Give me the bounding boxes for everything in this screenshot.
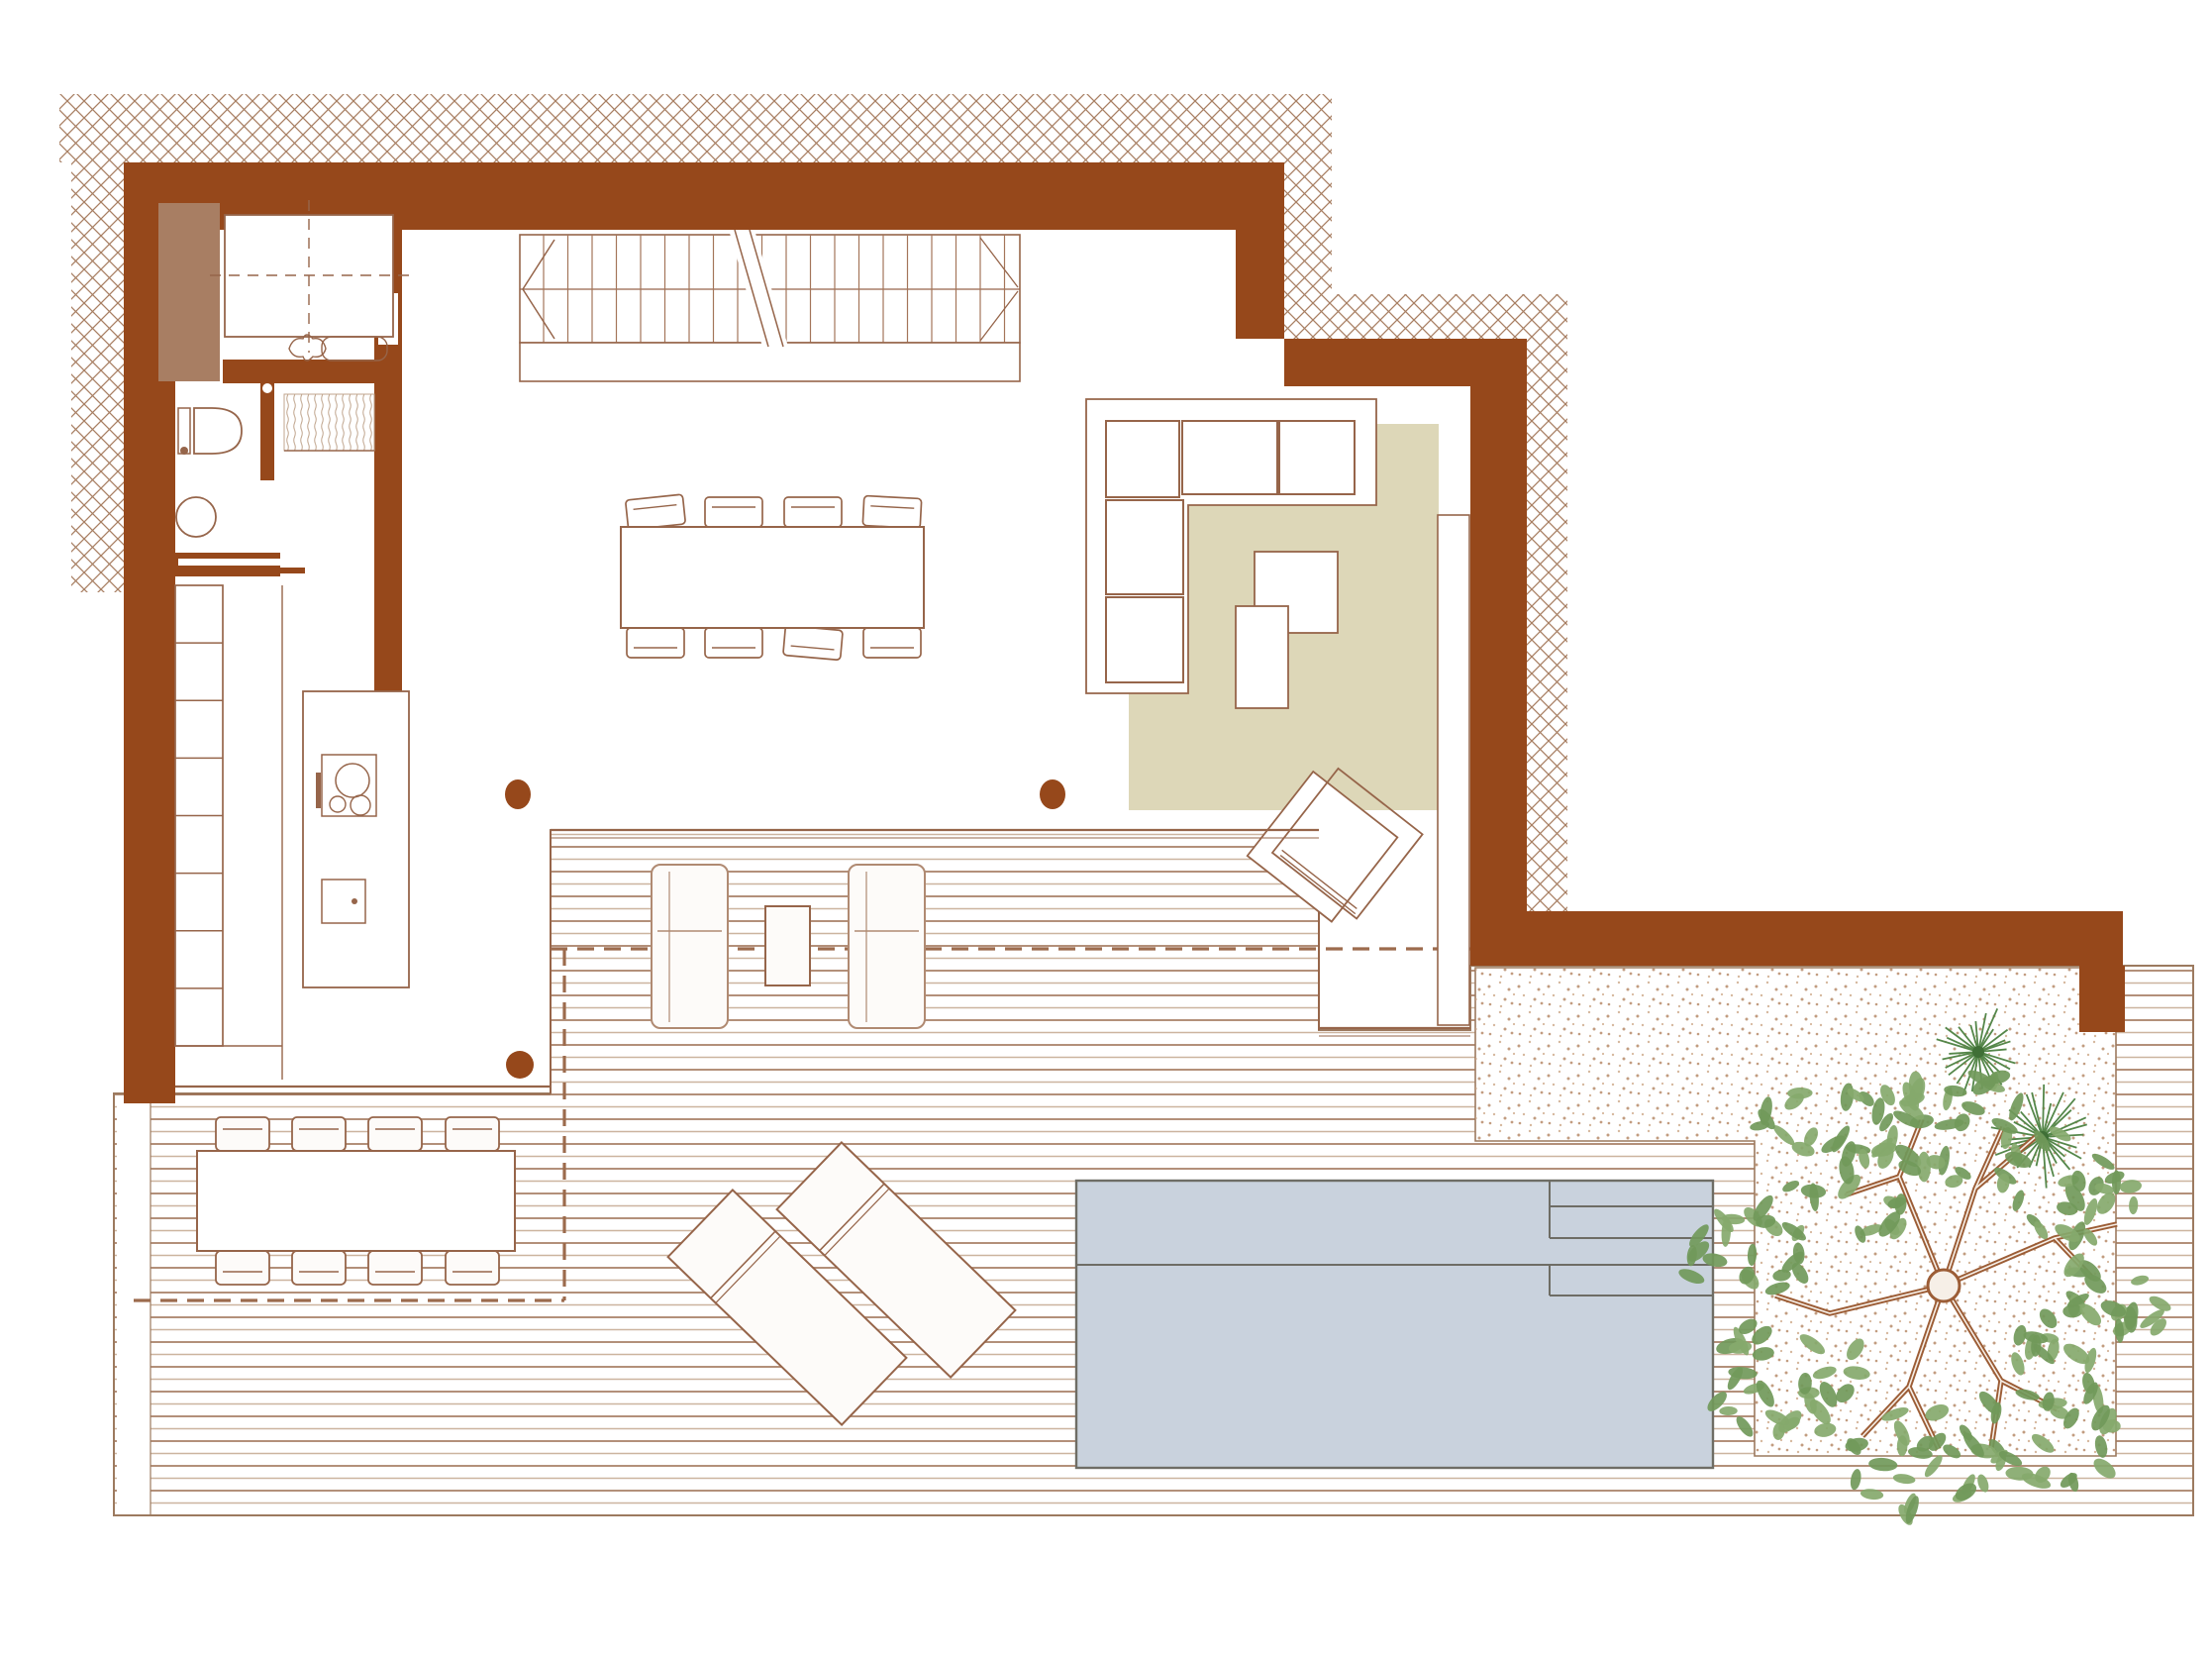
small-basin: [289, 335, 326, 361]
dining-chair: [862, 496, 921, 529]
floor-plan-canvas: [0, 0, 2212, 1659]
outdoor-dining-chair: [368, 1117, 422, 1151]
stair-landing: [520, 343, 1020, 381]
bath-partition: [260, 381, 274, 480]
dining-chair: [626, 494, 686, 530]
wall-step-vertical: [1236, 230, 1284, 339]
bathroom: [176, 381, 374, 537]
outdoor-dining-chair: [446, 1117, 499, 1151]
dining-table: [621, 527, 924, 628]
dining-chair: [705, 497, 762, 527]
wall-bottom-right: [1470, 911, 2123, 966]
wash-basin: [176, 497, 216, 537]
wall-elevator-bottom: [223, 360, 374, 383]
elevator-room: [158, 200, 410, 381]
pocket-door-leaf: [186, 568, 305, 573]
outdoor-dining-chair: [446, 1251, 499, 1285]
outdoor-dining-chair: [216, 1251, 269, 1285]
sideboard: [1438, 515, 1469, 1025]
side-table: [765, 906, 810, 985]
island-sink: [322, 880, 365, 923]
outdoor-dining-chair: [368, 1251, 422, 1285]
dining-chair: [863, 628, 921, 658]
staircase: [520, 230, 1020, 381]
dining-chair: [627, 628, 684, 658]
outdoor-dining-chair: [216, 1117, 269, 1151]
outdoor-dining-chair: [292, 1117, 346, 1151]
elevator-shaft: [158, 203, 220, 381]
kitchen-island: [303, 691, 409, 987]
dining-chair: [783, 626, 843, 661]
shower-closet: [284, 394, 374, 451]
outdoor-dining-chair: [292, 1251, 346, 1285]
coffee-table-small: [1236, 606, 1288, 708]
floor-plan-drawing: [0, 0, 2212, 1659]
wall-end-tab: [2079, 966, 2125, 1032]
dining-area: [621, 494, 924, 660]
sun-lounger: [849, 865, 925, 1028]
outdoor-dining-table: [197, 1151, 515, 1251]
kitchen-wall-cabinets: [175, 585, 223, 1046]
dining-chair: [784, 497, 842, 527]
sun-lounger: [652, 865, 728, 1028]
wall-step-horizontal: [1284, 339, 1527, 386]
swimming-pool: [1076, 1181, 1713, 1468]
dining-chair: [705, 628, 762, 658]
wall-right: [1470, 386, 1527, 911]
deck-gutter: [117, 1095, 151, 1513]
kitchen: [175, 585, 409, 1080]
toilet: [178, 408, 242, 455]
